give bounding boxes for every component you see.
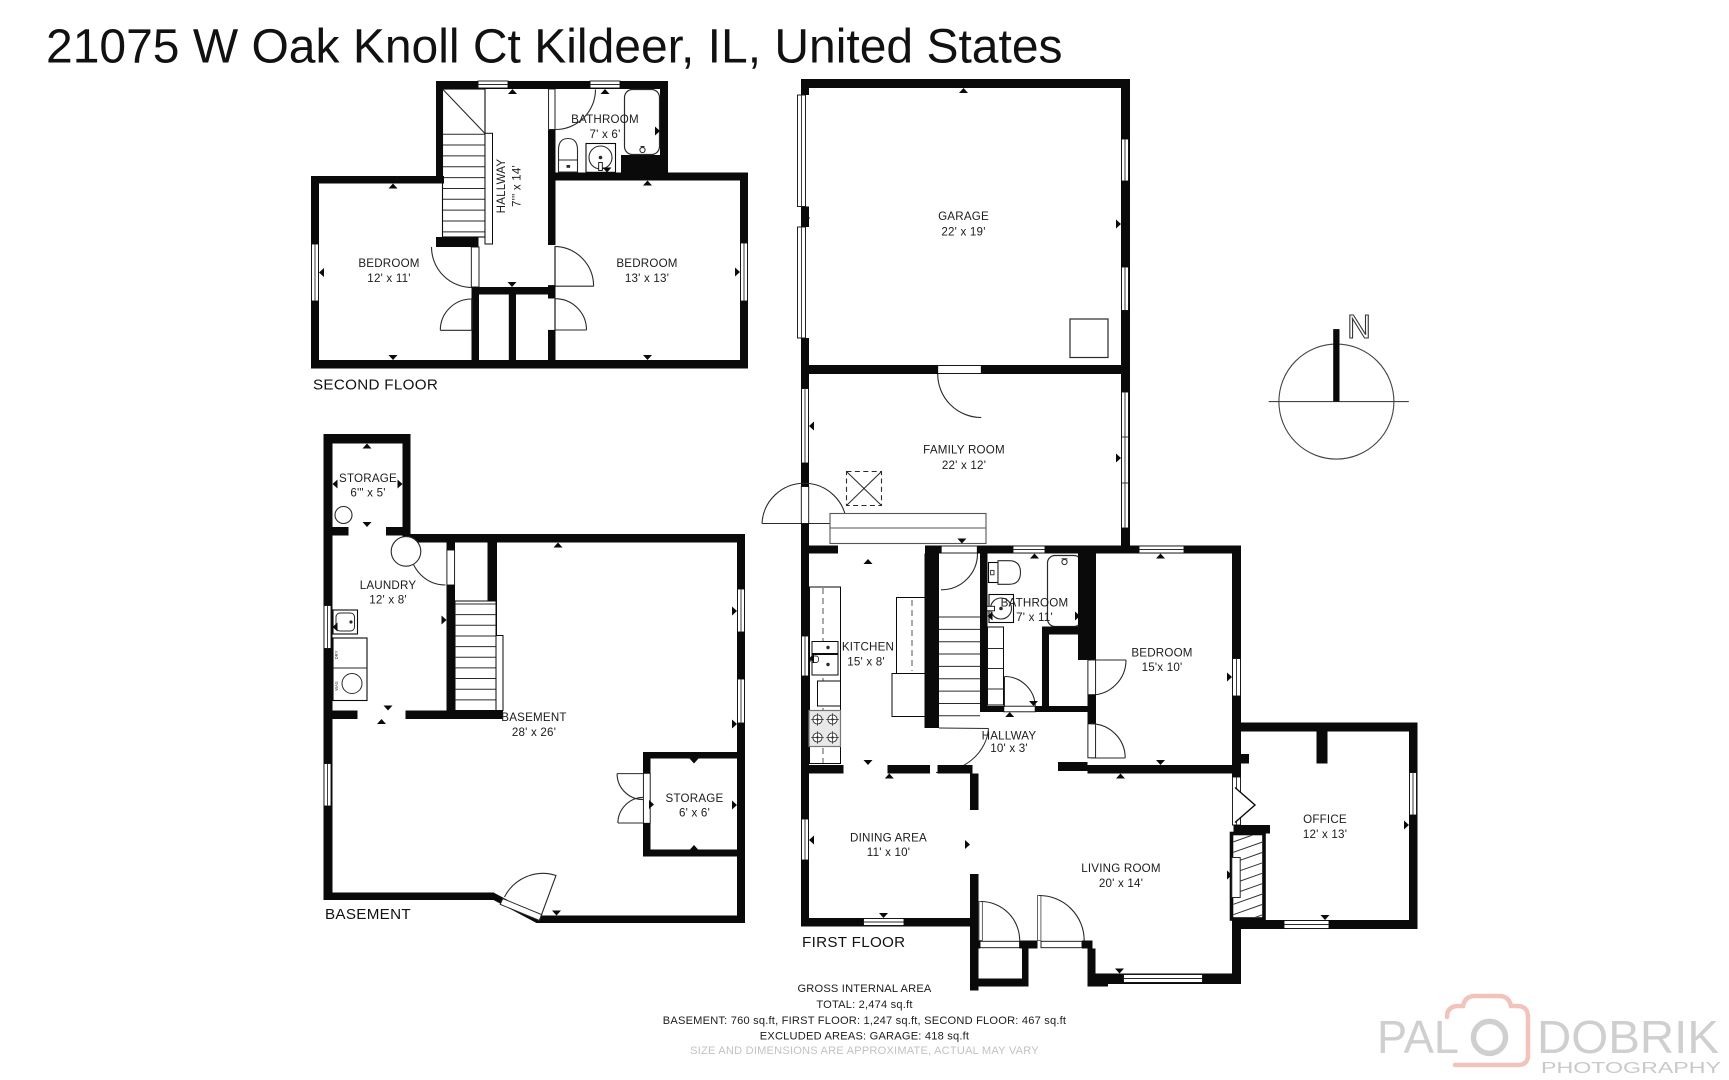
svg-text:N: N	[1347, 308, 1371, 345]
svg-text:15'x 10': 15'x 10'	[1142, 661, 1183, 674]
svg-text:BATHROOM: BATHROOM	[1001, 597, 1069, 610]
svg-text:DINING AREA: DINING AREA	[850, 832, 927, 845]
svg-text:SECOND FLOOR: SECOND FLOOR	[313, 377, 438, 394]
svg-text:FAMILY ROOM: FAMILY ROOM	[923, 444, 1005, 457]
svg-text:6' x 6': 6' x 6'	[679, 806, 710, 819]
svg-text:7' x 6': 7' x 6'	[590, 128, 621, 141]
svg-text:22' x 19': 22' x 19'	[941, 226, 985, 239]
svg-text:SIZE AND DIMENSIONS ARE APPROX: SIZE AND DIMENSIONS ARE APPROXIMATE, ACT…	[690, 1045, 1039, 1057]
svg-text:FIRST FLOOR: FIRST FLOOR	[802, 934, 905, 951]
svg-text:DOBRIK: DOBRIK	[1537, 1011, 1719, 1063]
svg-text:21075 W Oak Knoll Ct Kildeer,: 21075 W Oak Knoll Ct Kildeer, IL, United…	[46, 21, 1063, 74]
svg-text:13' x 13': 13' x 13'	[625, 272, 669, 285]
svg-text:GROSS INTERNAL AREA: GROSS INTERNAL AREA	[797, 983, 931, 995]
svg-text:STORAGE: STORAGE	[666, 792, 724, 805]
svg-text:BATHROOM: BATHROOM	[571, 113, 639, 126]
svg-text:7' x 11': 7' x 11'	[1016, 611, 1053, 624]
svg-text:DRY: DRY	[334, 650, 339, 659]
svg-text:11' x 10': 11' x 10'	[867, 846, 910, 859]
svg-text:BEDROOM: BEDROOM	[1131, 647, 1192, 660]
svg-text:10' x 3': 10' x 3'	[990, 742, 1028, 755]
svg-text:BEDROOM: BEDROOM	[616, 257, 677, 270]
svg-text:TOTAL: 2,474 sq.ft: TOTAL: 2,474 sq.ft	[816, 999, 912, 1011]
svg-text:BASEMENT: BASEMENT	[501, 711, 566, 724]
svg-text:KITCHEN: KITCHEN	[842, 641, 894, 654]
svg-text:20' x 14': 20' x 14'	[1099, 877, 1143, 890]
svg-text:HALLWAY: HALLWAY	[495, 159, 508, 214]
svg-text:LIVING ROOM: LIVING ROOM	[1081, 862, 1161, 875]
svg-text:GARAGE: GARAGE	[938, 210, 989, 223]
svg-text:HALLWAY: HALLWAY	[982, 730, 1037, 743]
svg-text:12' x 8': 12' x 8'	[369, 594, 407, 607]
svg-text:BASEMENT: BASEMENT	[325, 906, 411, 923]
svg-text:15' x 8': 15' x 8'	[847, 656, 885, 669]
svg-text:BEDROOM: BEDROOM	[358, 257, 419, 270]
svg-text:28' x 26': 28' x 26'	[512, 726, 556, 739]
svg-text:12' x 13': 12' x 13'	[1303, 828, 1347, 841]
svg-text:BASEMENT: 760 sq.ft, FIRST FLO: BASEMENT: 760 sq.ft, FIRST FLOOR: 1,247 …	[663, 1015, 1066, 1027]
svg-text:6'" x 5': 6'" x 5'	[350, 487, 385, 500]
svg-text:STORAGE: STORAGE	[339, 472, 397, 485]
svg-text:OFFICE: OFFICE	[1303, 813, 1347, 826]
svg-text:WAS: WAS	[334, 681, 339, 691]
svg-text:LAUNDRY: LAUNDRY	[360, 579, 417, 592]
svg-text:EXCLUDED AREAS: GARAGE: 418 sq: EXCLUDED AREAS: GARAGE: 418 sq.ft	[760, 1031, 969, 1043]
svg-text:7'" x 14': 7'" x 14'	[511, 165, 524, 207]
svg-text:12' x 11': 12' x 11'	[367, 272, 410, 285]
svg-text:PHOTOGRAPHY: PHOTOGRAPHY	[1541, 1060, 1721, 1077]
svg-text:22' x 12': 22' x 12'	[942, 459, 986, 472]
